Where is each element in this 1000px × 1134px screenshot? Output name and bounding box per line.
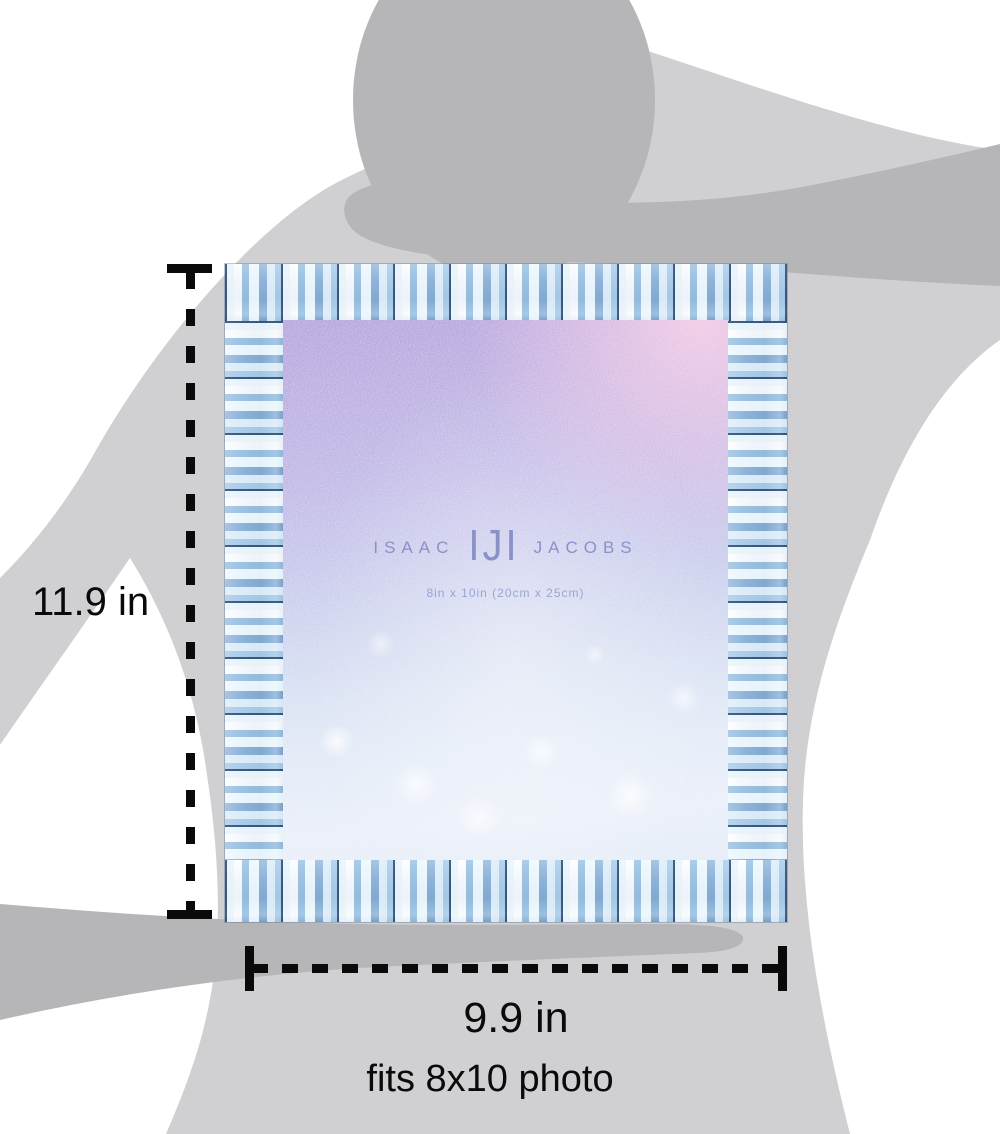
width-dimension-line (252, 964, 780, 973)
height-dimension-line (186, 272, 195, 912)
brand-logo: ISAAC IJI JACOBS (283, 526, 728, 569)
fits-caption: fits 8x10 photo (280, 1058, 700, 1101)
picture-frame: ISAAC IJI JACOBS 8in x 10in (20cm x 25cm… (225, 264, 787, 922)
brand-name-left: ISAAC (373, 538, 454, 558)
product-dimension-image: ISAAC IJI JACOBS 8in x 10in (20cm x 25cm… (0, 0, 1000, 1134)
width-label: 9.9 in (396, 994, 636, 1043)
frame-border-bottom (225, 860, 787, 922)
brand-monogram: IJI (468, 522, 519, 571)
insert-size-text: 8in x 10in (20cm x 25cm) (283, 586, 728, 600)
frame-border-left (225, 321, 283, 860)
brand-name-right: JACOBS (534, 538, 638, 558)
height-line-bottom-cap (167, 910, 212, 919)
frame-border-top (225, 264, 787, 321)
height-label: 11.9 in (32, 580, 172, 625)
width-line-right-cap (778, 946, 787, 991)
frame-insert-photo: ISAAC IJI JACOBS 8in x 10in (20cm x 25cm… (283, 320, 728, 860)
frame-border-right (728, 321, 787, 860)
